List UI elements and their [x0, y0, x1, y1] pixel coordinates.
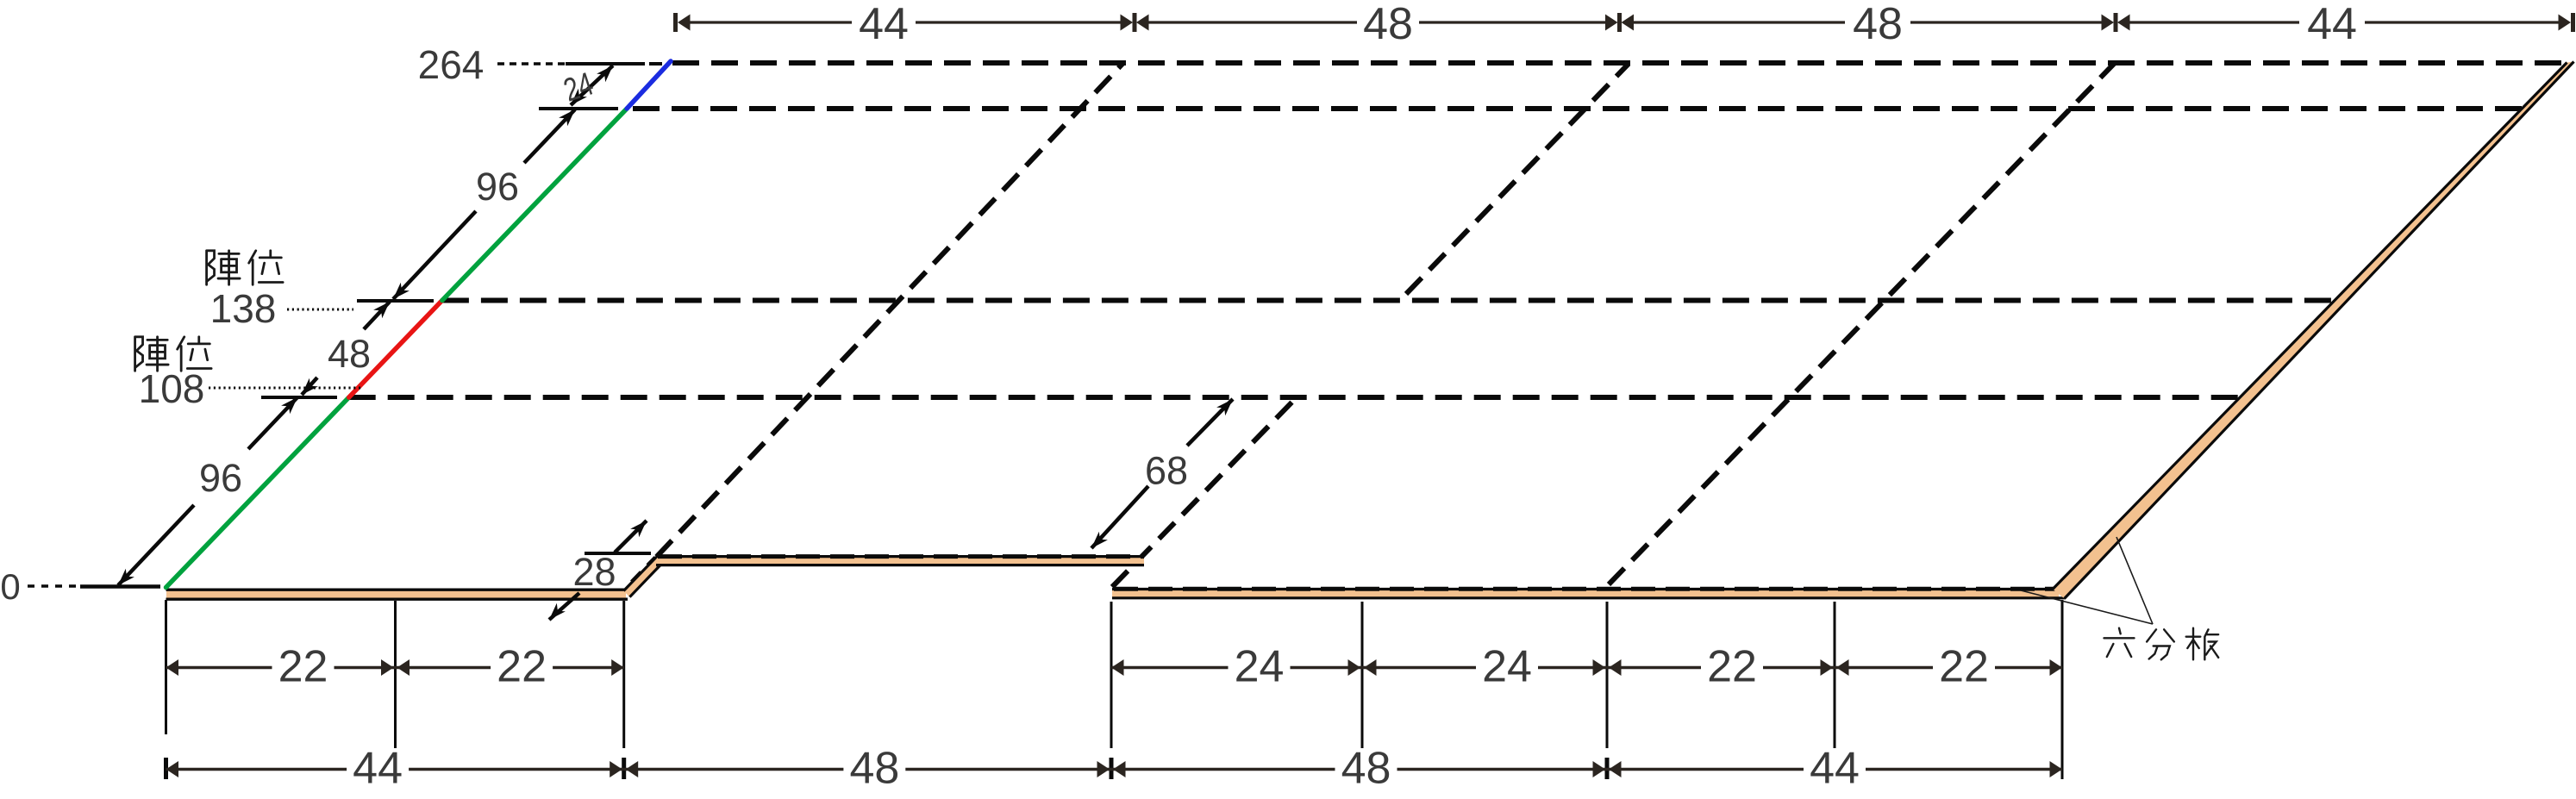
svg-text:48: 48	[1363, 0, 1413, 49]
svg-text:44: 44	[353, 744, 403, 794]
svg-text:96: 96	[199, 456, 242, 500]
svg-text:264: 264	[418, 42, 485, 87]
svg-text:68: 68	[1145, 449, 1188, 493]
svg-text:48: 48	[1341, 744, 1391, 794]
svg-text:48: 48	[328, 332, 371, 376]
svg-text:48: 48	[849, 744, 899, 794]
svg-text:96: 96	[476, 165, 519, 209]
svg-text:22: 22	[278, 642, 328, 692]
svg-text:22: 22	[1939, 642, 1989, 692]
svg-text:24: 24	[1235, 642, 1285, 692]
svg-text:28: 28	[572, 550, 616, 594]
svg-text:44: 44	[2307, 0, 2357, 49]
svg-text:108: 108	[139, 366, 205, 411]
svg-text:138: 138	[210, 286, 277, 331]
svg-text:44: 44	[859, 0, 909, 49]
svg-text:22: 22	[497, 642, 547, 692]
svg-text:22: 22	[1707, 642, 1757, 692]
svg-text:24: 24	[1482, 642, 1532, 692]
svg-text:0: 0	[0, 566, 20, 607]
svg-text:44: 44	[1810, 744, 1860, 794]
svg-text:48: 48	[1853, 0, 1903, 49]
